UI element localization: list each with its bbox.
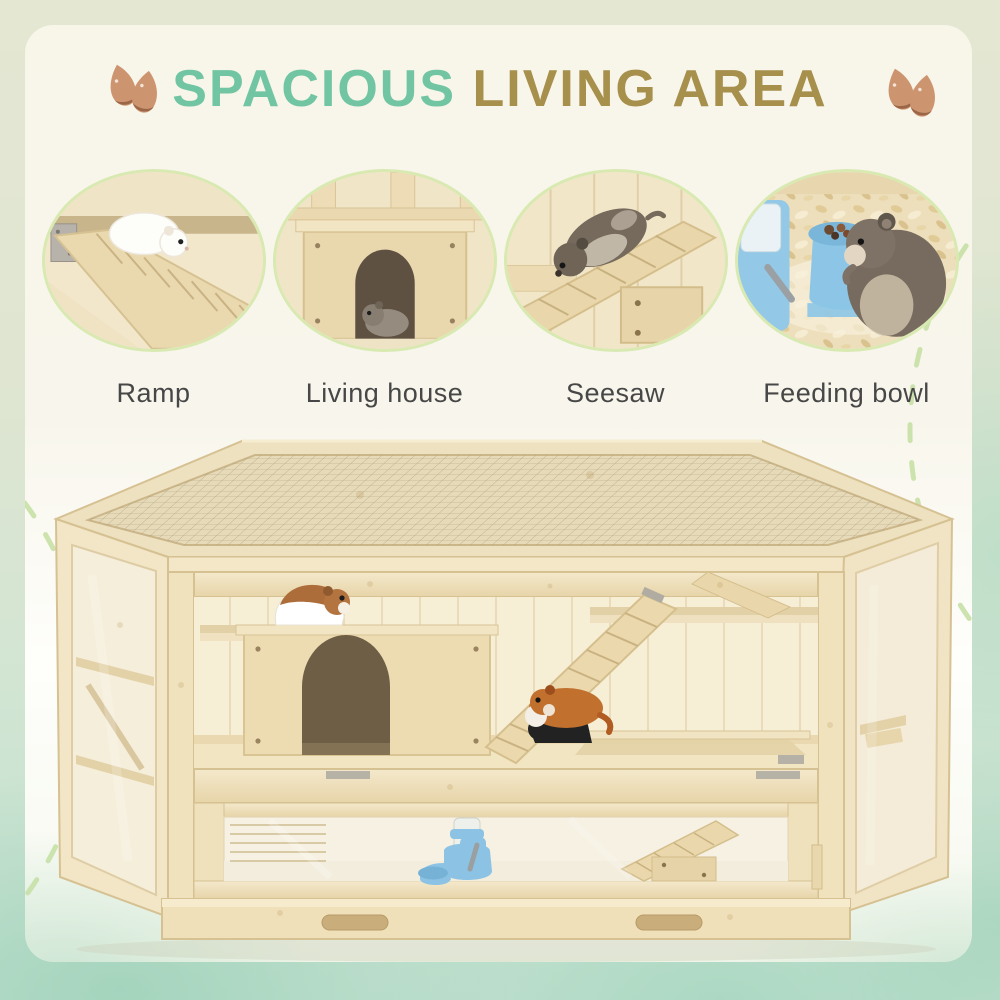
feature-label: Living house [306,378,464,409]
product-photo [30,425,970,970]
page-title: SPACIOUS LIVING AREA [0,56,1000,122]
feature-list: Ramp Living house [0,169,1000,409]
marketing-banner: { "page": { "type": "product-feature-ban… [0,0,1000,1000]
title-living-area: LIVING AREA [473,60,828,118]
header: SPACIOUS LIVING AREA [0,56,1000,126]
feature-card-feeding-bowl: Feeding bowl [735,169,959,409]
feature-card-seesaw: Seesaw [504,169,728,409]
feature-image-ramp [42,169,266,352]
feature-card-living-house: Living house [273,169,497,409]
feature-image-seesaw [504,169,728,352]
feature-image-living-house [273,169,497,352]
feature-image-feeding-bowl [735,169,959,352]
title-spacious: SPACIOUS [172,60,456,118]
feature-card-ramp: Ramp [42,169,266,409]
seeds-icon [880,64,944,126]
feature-label: Ramp [116,378,190,409]
feature-label: Feeding bowl [763,378,930,409]
feature-label: Seesaw [566,378,665,409]
